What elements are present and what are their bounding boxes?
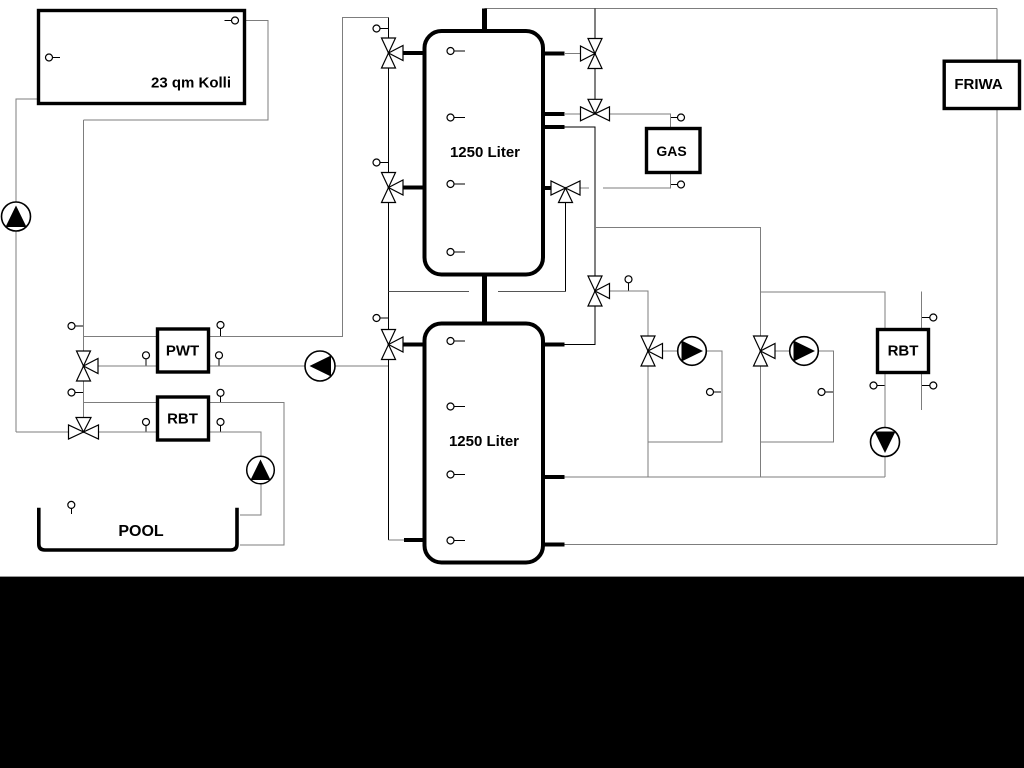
svg-text:RBT: RBT: [167, 411, 198, 428]
svg-text:1250 Liter: 1250 Liter: [449, 433, 519, 450]
svg-text:1250 Liter: 1250 Liter: [450, 144, 520, 161]
svg-text:PWT: PWT: [166, 343, 199, 360]
svg-text:POOL: POOL: [118, 523, 164, 540]
svg-text:FRIWA: FRIWA: [954, 76, 1002, 93]
svg-text:GAS: GAS: [656, 143, 686, 159]
svg-text:RBT: RBT: [888, 343, 919, 360]
svg-text:23 qm Kolli: 23 qm Kolli: [151, 75, 231, 92]
